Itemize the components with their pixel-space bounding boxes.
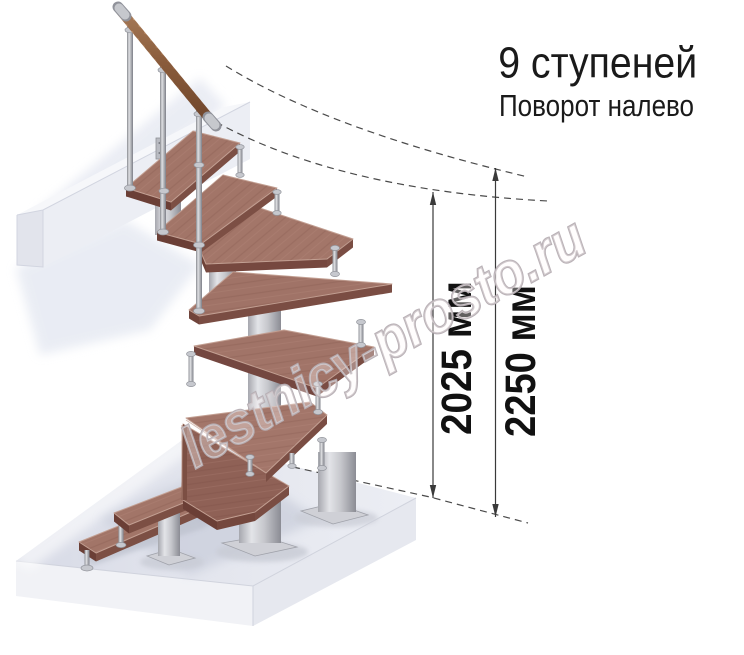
svg-text:Поворот налево: Поворот налево (499, 88, 694, 123)
svg-text:9 ступеней: 9 ступеней (498, 40, 697, 88)
